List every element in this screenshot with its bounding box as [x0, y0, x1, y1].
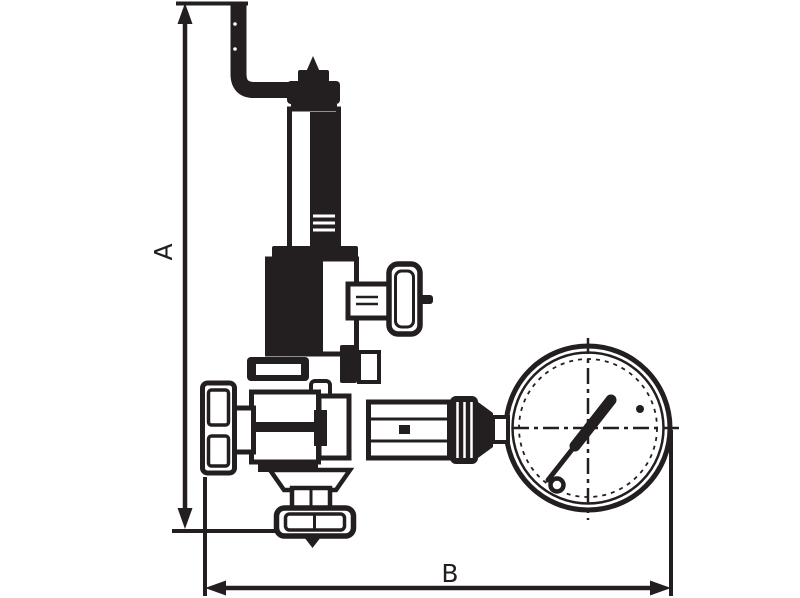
- pressure-gauge: [506, 338, 681, 520]
- body-top-slot: [256, 364, 301, 375]
- valve-assembly: [203, 4, 509, 548]
- adjustment-screw: [310, 112, 337, 254]
- dim-a-arrow-down-icon: [178, 508, 193, 529]
- gauge-stem: [493, 417, 508, 442]
- gauge-taper: [478, 402, 493, 458]
- dim-a-arrow-up-icon: [178, 3, 193, 24]
- gauge-port-boss: [340, 345, 357, 383]
- bonnet-cap-top: [298, 70, 329, 82]
- spring-housing-section: [267, 259, 323, 354]
- hex-center-mark: [399, 425, 410, 434]
- flow-direction-arrow-icon: [304, 537, 321, 548]
- bonnet-cap-pin: [306, 56, 320, 72]
- drawing-canvas: A B: [0, 0, 800, 598]
- bonnet-cap: [287, 81, 340, 104]
- body-inner-stem: [314, 410, 327, 446]
- technical-drawing: A B: [0, 0, 800, 598]
- gauge-dial-dot: [636, 405, 644, 413]
- dim-b-label: B: [441, 559, 458, 588]
- t-handle-pin: [420, 295, 433, 304]
- side-t-handle: [389, 264, 420, 334]
- dim-b-arrow-left-icon: [205, 581, 226, 596]
- t-handle-stem: [348, 284, 392, 318]
- gauge-needle-hub: [551, 479, 564, 492]
- dim-a-label: A: [149, 243, 178, 260]
- gauge-port-flange: [359, 352, 379, 382]
- rod-mark-1: [233, 22, 237, 26]
- body-seat-band: [251, 422, 319, 432]
- rod-mark-2: [233, 47, 237, 51]
- adjustment-rod: [239, 4, 301, 90]
- dim-b-arrow-right-icon: [650, 581, 671, 596]
